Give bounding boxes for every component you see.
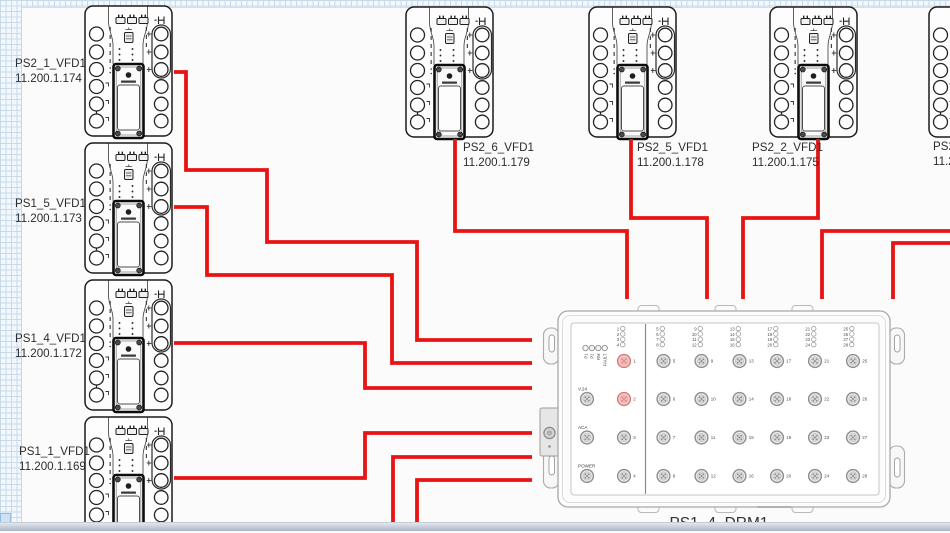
cable-offscreen-bottom-1[interactable]: [393, 457, 532, 530]
device-label-partial[interactable]: PS2_ 11.2: [933, 139, 950, 170]
device-label-ps1-4-vfd1[interactable]: PS1_4_VFD1 11.200.1.172: [15, 331, 86, 362]
device-ip: 11.2: [933, 154, 950, 169]
device-label-ps2-6-vfd1[interactable]: PS2_6_VFD1 11.200.1.179: [463, 140, 534, 171]
drm-face-panel: [571, 323, 879, 495]
svg-text:FAULT: FAULT: [603, 353, 608, 366]
vfd-device-ps2-1[interactable]: [85, 6, 172, 138]
device-ip: 11.200.1.173: [15, 211, 86, 226]
svg-text:23: 23: [805, 337, 810, 342]
drm-side-ports: V.24ACAPOWER: [578, 387, 596, 483]
drm-port-number: 16: [749, 474, 754, 479]
device-name: PS2_: [933, 139, 950, 154]
device-label-ps2-5-vfd1[interactable]: PS2_5_VFD1 11.200.1.178: [637, 140, 708, 171]
drm-port-number: 21: [824, 359, 829, 364]
vfd-device-ps2-2[interactable]: [770, 7, 857, 139]
drm-port-number: 13: [749, 359, 754, 364]
device-ip: 11.200.1.178: [637, 155, 708, 170]
svg-text:V.24: V.24: [578, 387, 587, 392]
device-name: PS1_4_VFD1: [15, 331, 86, 346]
drm-port-number: 12: [711, 474, 716, 479]
svg-text:19: 19: [767, 337, 772, 342]
svg-text:10: 10: [692, 332, 697, 337]
svg-text:20: 20: [767, 342, 772, 347]
vfd-device-ps1-1[interactable]: [85, 417, 172, 530]
device-name: PS2_1_VFD1: [15, 56, 86, 71]
drm-port-number: 22: [824, 397, 829, 402]
svg-text:RM: RM: [596, 353, 601, 360]
drm-port-number: 18: [786, 397, 791, 402]
drm-port-number: 15: [749, 435, 754, 440]
drm-port-number: 17: [786, 359, 791, 364]
device-label-ps1-1-vfd1[interactable]: PS1_1_VFD1 11.200.1.169: [19, 444, 90, 475]
svg-text:11: 11: [692, 337, 697, 342]
svg-text:17: 17: [767, 326, 772, 331]
drm-port-number: 23: [824, 435, 829, 440]
svg-text:ACA: ACA: [578, 425, 588, 430]
drm-port-number: 26: [862, 397, 867, 402]
svg-text:25: 25: [843, 326, 848, 331]
device-name: PS1_1_VFD1: [19, 444, 90, 459]
device-label-ps1-5-vfd1[interactable]: PS1_5_VFD1 11.200.1.173: [15, 196, 86, 227]
drm-port-number: 25: [862, 359, 867, 364]
svg-text:POWER: POWER: [578, 464, 596, 469]
svg-text:22: 22: [805, 332, 810, 337]
drm-device[interactable]: P1P2RMFAULT 1234567891011121314151617181…: [540, 306, 905, 513]
cable-offscreen-right-2[interactable]: [893, 243, 950, 299]
svg-text:13: 13: [730, 326, 735, 331]
device-name: PS1_5_VFD1: [15, 196, 86, 211]
svg-text:12: 12: [692, 342, 697, 347]
vfd-device-partial[interactable]: [929, 7, 950, 139]
svg-text:15: 15: [730, 337, 735, 342]
drm-port-number: 14: [749, 397, 754, 402]
svg-text:26: 26: [843, 332, 848, 337]
drm-port-number: 19: [786, 435, 791, 440]
drm-port-number: 28: [862, 474, 867, 479]
svg-text:P2: P2: [590, 353, 595, 359]
svg-text:16: 16: [730, 342, 735, 347]
svg-text:P1: P1: [583, 353, 588, 359]
device-name: PS2_6_VFD1: [463, 140, 534, 155]
vfd-device-ps2-6[interactable]: [406, 7, 493, 139]
device-ip: 11.200.1.169: [19, 459, 90, 474]
svg-text:27: 27: [843, 337, 848, 342]
device-ip: 11.200.1.172: [15, 346, 86, 361]
svg-text:14: 14: [730, 332, 735, 337]
device-name: PS2_2_VFD1: [752, 140, 823, 155]
vfd-device-ps2-5[interactable]: [589, 7, 676, 139]
svg-text:18: 18: [767, 332, 772, 337]
svg-text:28: 28: [843, 342, 848, 347]
device-ip: 11.200.1.174: [15, 71, 86, 86]
drm-port-number: 11: [711, 435, 716, 440]
device-name: PS2_5_VFD1: [637, 140, 708, 155]
cable-ps1-4-vfd1[interactable]: [174, 343, 532, 388]
vfd-device-ps1-5[interactable]: [85, 143, 172, 275]
drm-port-number: 24: [824, 474, 829, 479]
device-label-ps2-2-vfd1[interactable]: PS2_2_VFD1 11.200.1.175: [752, 140, 823, 171]
device-ip: 11.200.1.179: [463, 155, 534, 170]
svg-text:24: 24: [805, 342, 810, 347]
drm-port-number: 27: [862, 435, 867, 440]
svg-text:21: 21: [805, 326, 810, 331]
vfd-device-ps1-4[interactable]: [85, 280, 172, 412]
drm-port-number: 20: [786, 474, 791, 479]
device-label-ps2-1-vfd1[interactable]: PS2_1_VFD1 11.200.1.174: [15, 56, 86, 87]
device-ip: 11.200.1.175: [752, 155, 823, 170]
drm-port-number: 10: [711, 397, 716, 402]
